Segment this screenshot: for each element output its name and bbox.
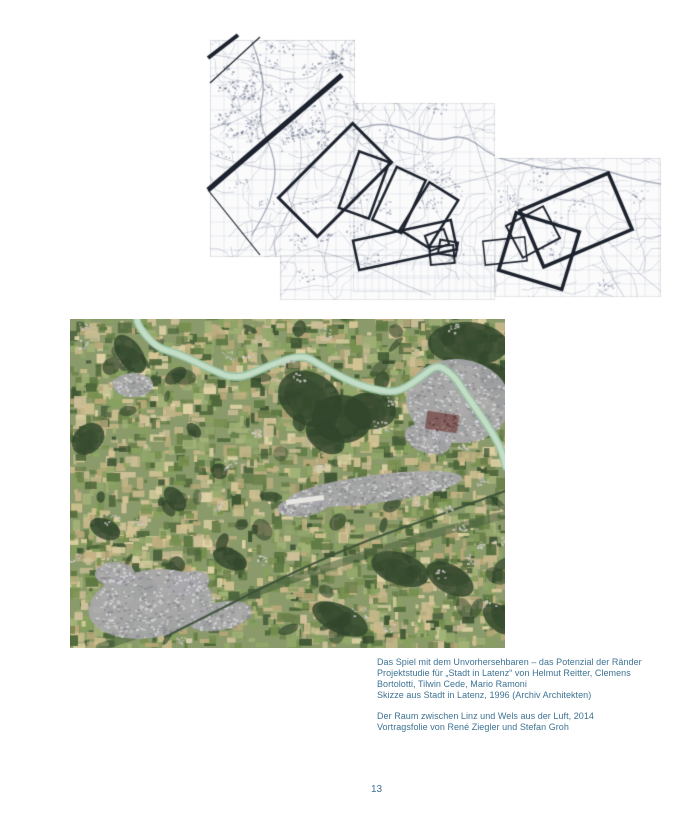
caption-block: Das Spiel mit dem Unvorhersehbaren – das… <box>377 657 653 733</box>
aerial-photo-canvas <box>70 319 505 648</box>
figure-aerial-photo <box>70 319 505 648</box>
figure-map-sketch <box>192 30 672 310</box>
caption-line: Der Raum zwischen Linz und Wels aus der … <box>377 711 594 721</box>
caption-paragraph-sketch: Das Spiel mit dem Unvorhersehbaren – das… <box>377 657 653 701</box>
caption-line: Skizze aus Stadt in Latenz, 1996 (Archiv… <box>377 690 591 700</box>
caption-paragraph-aerial: Der Raum zwischen Linz und Wels aus der … <box>377 711 653 733</box>
caption-line: Das Spiel mit dem Unvorhersehbaren – das… <box>377 657 642 667</box>
page-number: 13 <box>371 785 382 795</box>
caption-line: Bortolotti, Tilwin Cede, Mario Ramoni <box>377 679 527 689</box>
map-sketch-canvas <box>192 30 672 310</box>
caption-line: Vortragsfolie von René Ziegler und Stefa… <box>377 722 569 732</box>
caption-line: Projektstudie für „Stadt in Latenz“ von … <box>377 668 631 678</box>
book-page: Das Spiel mit dem Unvorhersehbaren – das… <box>0 0 699 839</box>
